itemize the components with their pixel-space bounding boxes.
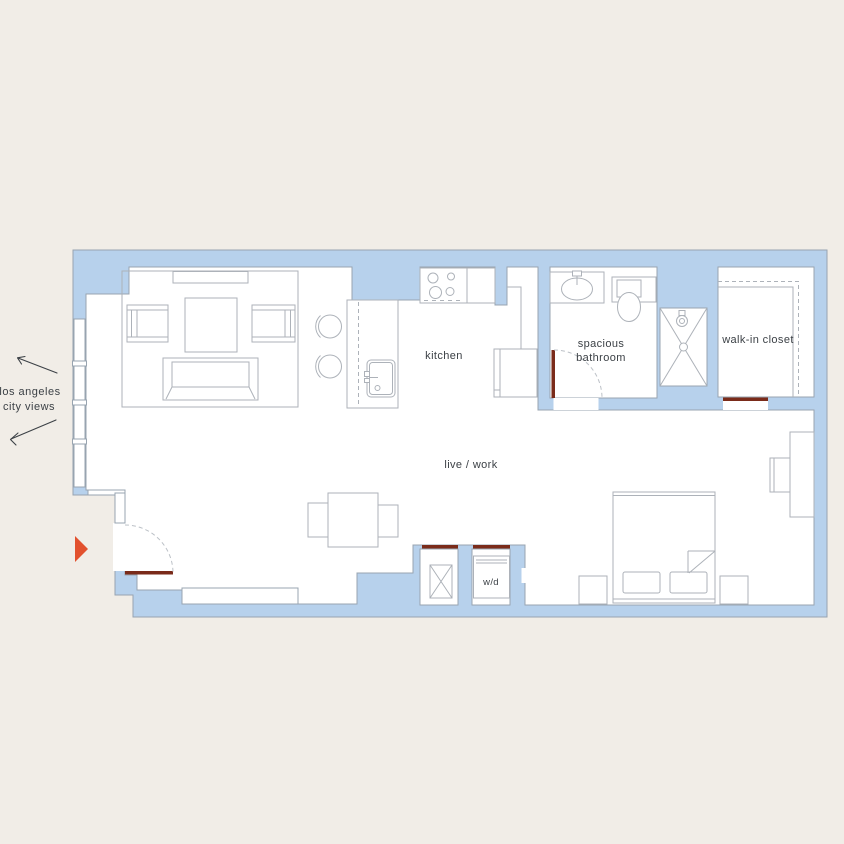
pillow	[670, 572, 707, 593]
dining-chair-left	[308, 503, 328, 537]
view-arrow-down-icon	[11, 420, 57, 445]
shower-head-arm	[679, 311, 685, 316]
window-left-wall	[73, 319, 87, 487]
floor-plan-page: w/d	[0, 0, 844, 844]
view-annotation: los angeles city views	[0, 357, 61, 446]
refrigerator	[494, 349, 537, 397]
pillow	[623, 572, 660, 593]
bathroom-door-opening	[554, 398, 599, 410]
desk-chair	[770, 458, 790, 492]
armchair-right	[252, 305, 295, 342]
sofa	[163, 358, 258, 400]
armchair-left	[127, 305, 168, 342]
wall-notch	[522, 568, 527, 583]
entry-door-opening	[113, 523, 127, 571]
toilet-bowl	[618, 293, 641, 322]
entry-marker-icon	[75, 536, 88, 562]
closet-door-threshold	[723, 398, 768, 402]
media-console	[173, 272, 248, 284]
view-label-line2: city views	[3, 401, 55, 413]
nightstand-right	[720, 576, 748, 604]
laundry-closet-threshold	[473, 545, 510, 549]
floor-plan: w/d	[0, 0, 844, 844]
vanity-sink	[550, 271, 604, 303]
sink-faucet	[365, 379, 370, 383]
bathroom-label-line1: spacious	[578, 338, 625, 350]
window-mullion	[73, 361, 87, 366]
island-sink	[365, 360, 396, 397]
bathroom-label-line2: bathroom	[576, 352, 626, 364]
entry-door-leaf	[125, 571, 173, 575]
nightstand-left	[579, 576, 607, 604]
coffee-table	[185, 298, 237, 352]
laundry-label: w/d	[482, 577, 499, 588]
shower-head	[677, 316, 688, 327]
closet-door-opening	[723, 401, 768, 410]
dining-table	[328, 493, 378, 547]
window-mullion	[73, 400, 87, 405]
living-label: live / work	[444, 459, 497, 471]
entry-side-wall	[115, 493, 125, 523]
closet-label: walk-in closet	[721, 334, 794, 346]
view-label-line1: los angeles	[0, 386, 61, 398]
laundry-closet: w/d	[472, 549, 510, 605]
dining-chair-right	[378, 505, 398, 537]
utility-closet	[420, 549, 458, 605]
window-mullion	[73, 439, 87, 444]
view-arrow-up-icon	[18, 357, 58, 374]
bathroom-door-leaf	[552, 350, 556, 398]
stove	[420, 268, 495, 303]
kitchen-label: kitchen	[425, 350, 463, 362]
window-bottom-wall	[182, 588, 298, 604]
shower-drain	[680, 343, 688, 351]
bed	[613, 492, 715, 603]
vanity-faucet	[573, 271, 582, 276]
utility-closet-threshold	[422, 545, 458, 549]
sink-faucet	[365, 372, 370, 377]
